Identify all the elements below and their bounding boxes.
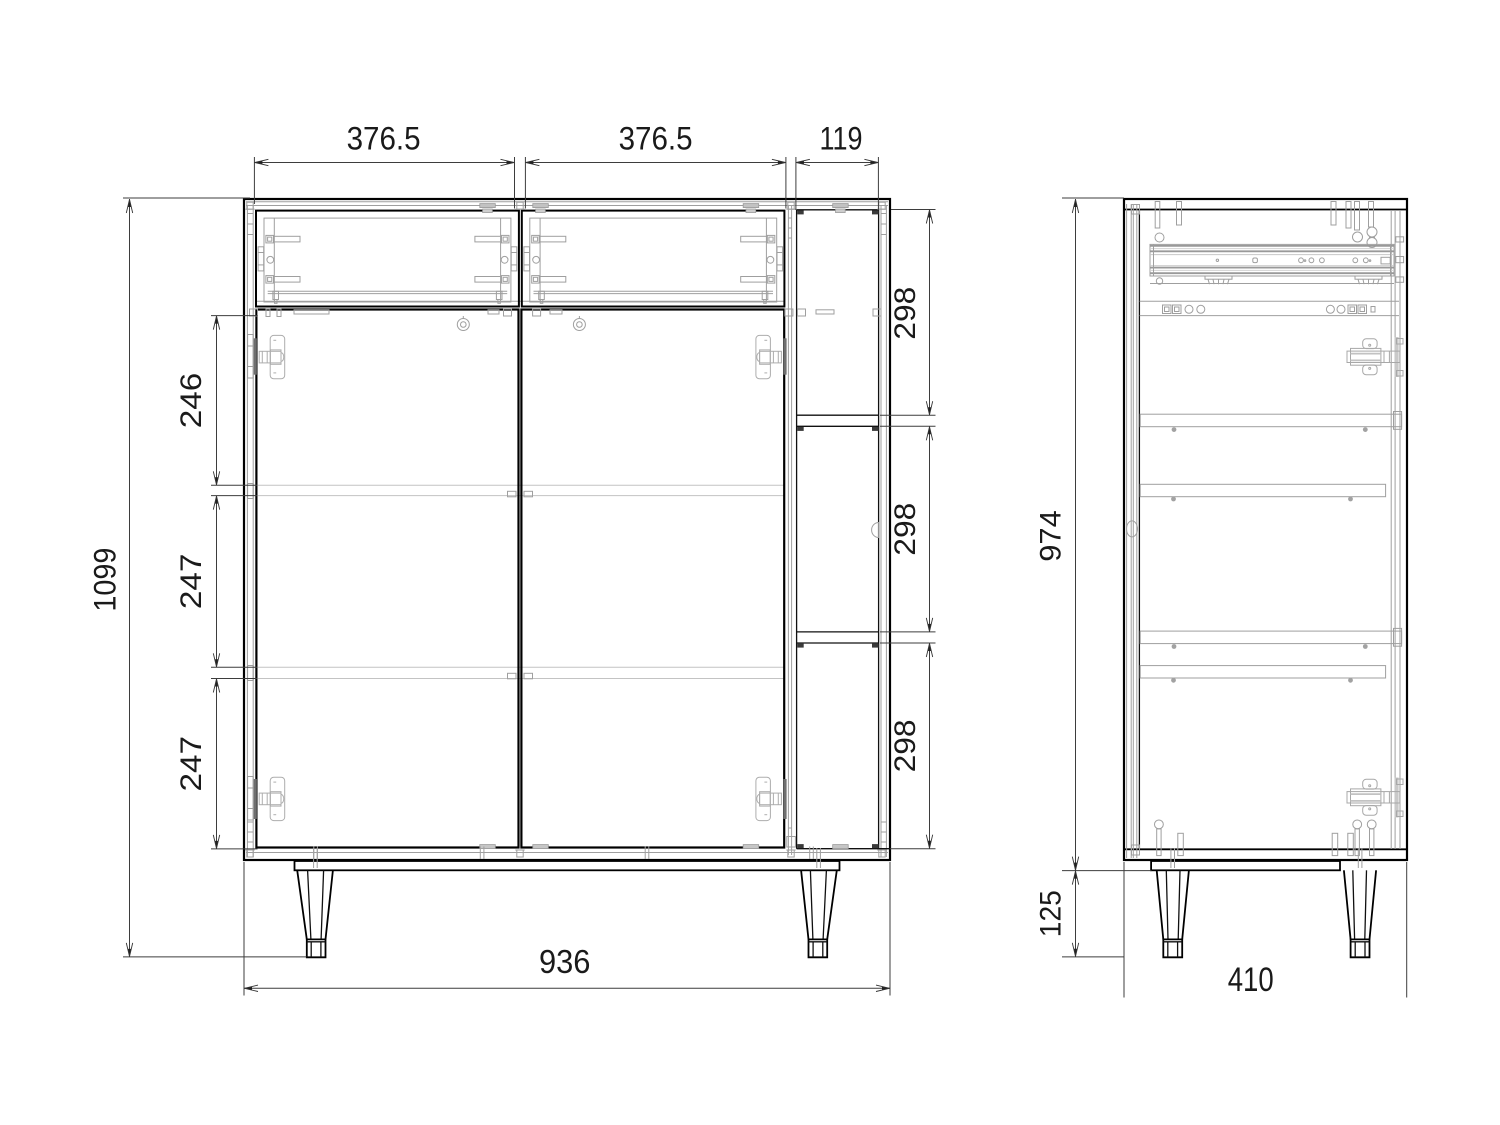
svg-text:125: 125 (1035, 890, 1068, 937)
svg-text:1099: 1099 (86, 548, 122, 612)
svg-text:410: 410 (1228, 961, 1274, 999)
svg-text:247: 247 (175, 736, 208, 792)
svg-text:376.5: 376.5 (619, 121, 693, 157)
svg-text:298: 298 (889, 719, 922, 772)
svg-text:376.5: 376.5 (347, 121, 421, 157)
svg-text:246: 246 (175, 373, 208, 429)
svg-text:247: 247 (175, 554, 208, 610)
svg-text:298: 298 (889, 503, 922, 556)
svg-text:974: 974 (1035, 510, 1068, 562)
svg-text:936: 936 (539, 943, 591, 980)
svg-text:119: 119 (820, 121, 863, 157)
svg-text:298: 298 (889, 287, 922, 340)
